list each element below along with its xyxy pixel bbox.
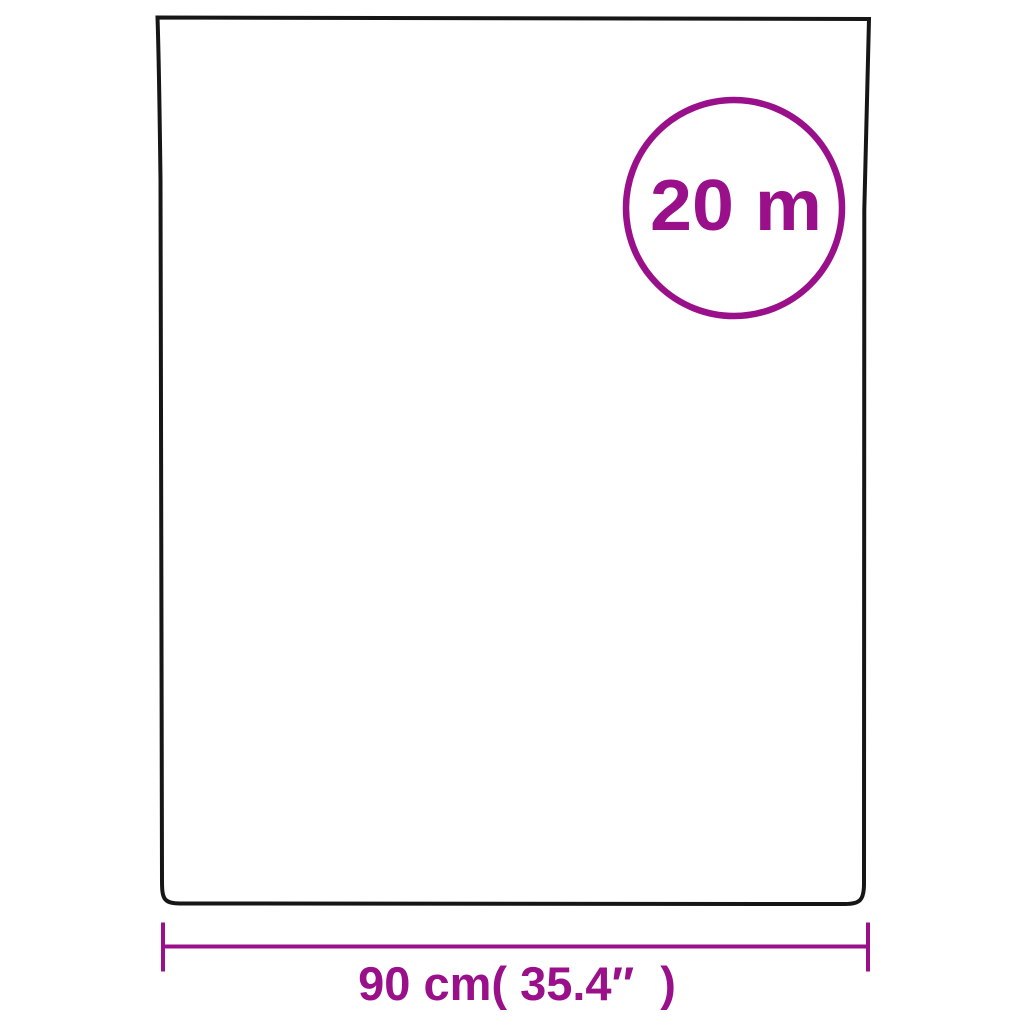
svg-text:20 m: 20 m: [650, 166, 822, 246]
svg-text:90 cm( 35.4″ ): 90 cm( 35.4″ ): [358, 957, 676, 1010]
